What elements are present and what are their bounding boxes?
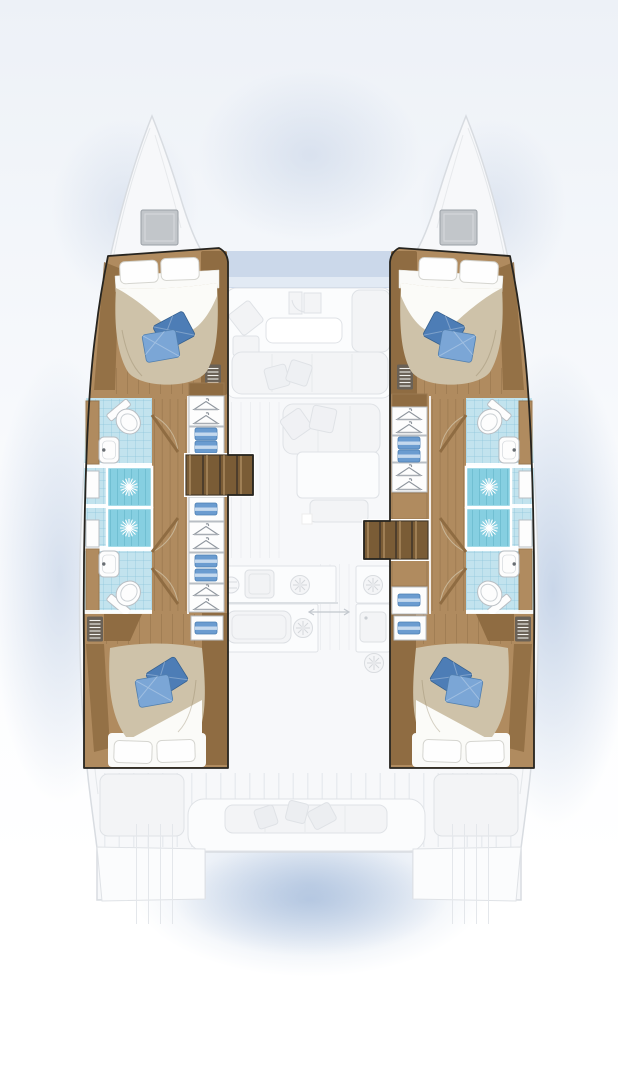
port-bow-hatch — [141, 210, 178, 245]
fore-table — [266, 318, 342, 343]
port-transom — [97, 847, 205, 901]
port-companionway-stairs — [184, 453, 255, 497]
catamaran-floor-plan — [0, 0, 618, 1080]
starboard-transom — [413, 847, 521, 901]
port-wardrobe-column — [189, 383, 224, 640]
foredeck-lounge — [226, 288, 392, 398]
saloon-table — [297, 452, 379, 498]
starboard-wardrobe-column — [392, 394, 427, 640]
starboard-companionway-stairs — [362, 519, 430, 561]
floor-plan-page — [0, 0, 618, 1080]
starboard-bow-hatch — [440, 210, 477, 245]
